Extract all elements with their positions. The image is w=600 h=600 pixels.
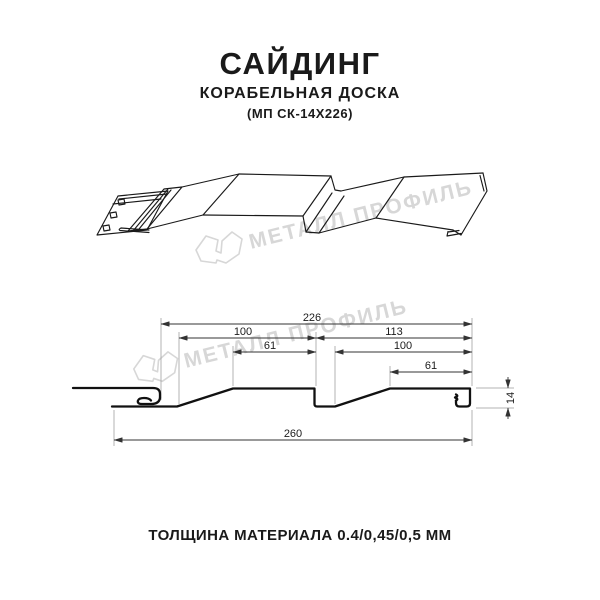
dim-board2-flat-label: 61	[425, 360, 437, 372]
metall-profil-logo-icon	[134, 352, 178, 381]
thickness-label: ТОЛЩИНА МАТЕРИАЛА 0.4/0,45/0,5 ММ	[0, 527, 600, 544]
dim-board2-width-label: 100	[394, 340, 412, 352]
watermark-text: МЕТАЛЛ ПРОФИЛЬ	[182, 295, 410, 373]
dim-board1-flat-label: 61	[264, 340, 276, 352]
dim-cover-width-label: 226	[303, 312, 321, 324]
dim-board1-width-label: 100	[234, 326, 252, 338]
dim-overall-width-label: 260	[284, 428, 302, 440]
watermark-text: МЕТАЛЛ ПРОФИЛЬ	[247, 176, 475, 254]
dim-profile-height-label: 14	[505, 392, 517, 404]
diagram-canvas: МЕТАЛЛ ПРОФИЛЬ МЕТАЛЛ ПРОФИЛЬ	[0, 0, 600, 600]
watermark-upper: МЕТАЛЛ ПРОФИЛЬ	[196, 176, 475, 263]
page: САЙДИНГ КОРАБЕЛЬНАЯ ДОСКА (МП СК-14Х226)…	[0, 0, 600, 600]
dim-board2-segment-label: 113	[385, 326, 403, 338]
metall-profil-logo-icon	[196, 232, 242, 263]
